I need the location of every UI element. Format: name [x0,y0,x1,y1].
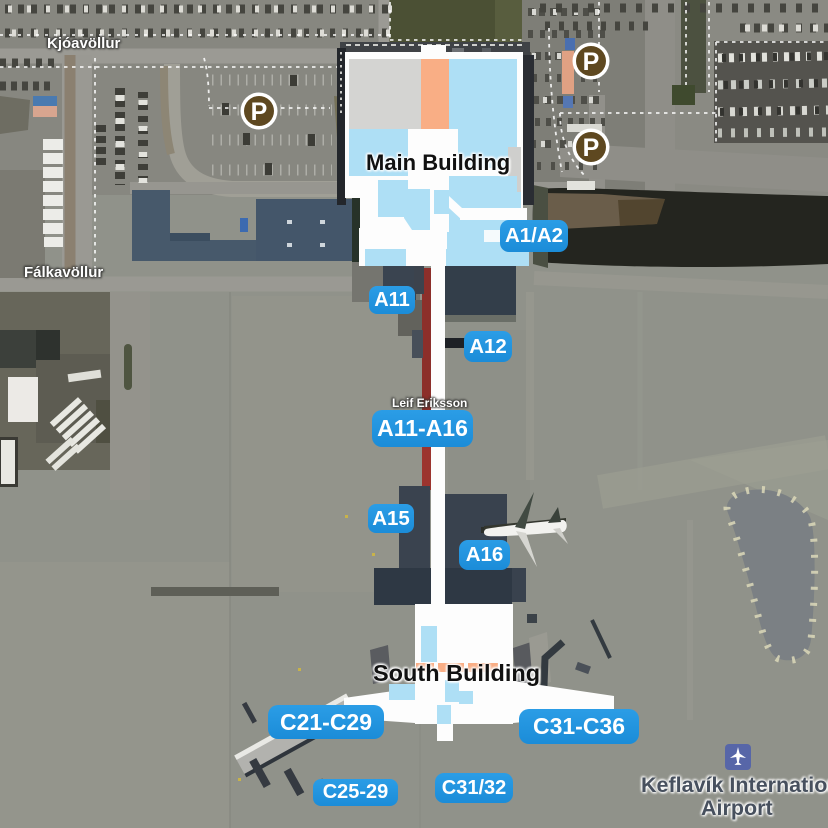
svg-text:P: P [251,98,268,126]
svg-text:P: P [583,48,600,76]
svg-text:P: P [583,134,600,162]
